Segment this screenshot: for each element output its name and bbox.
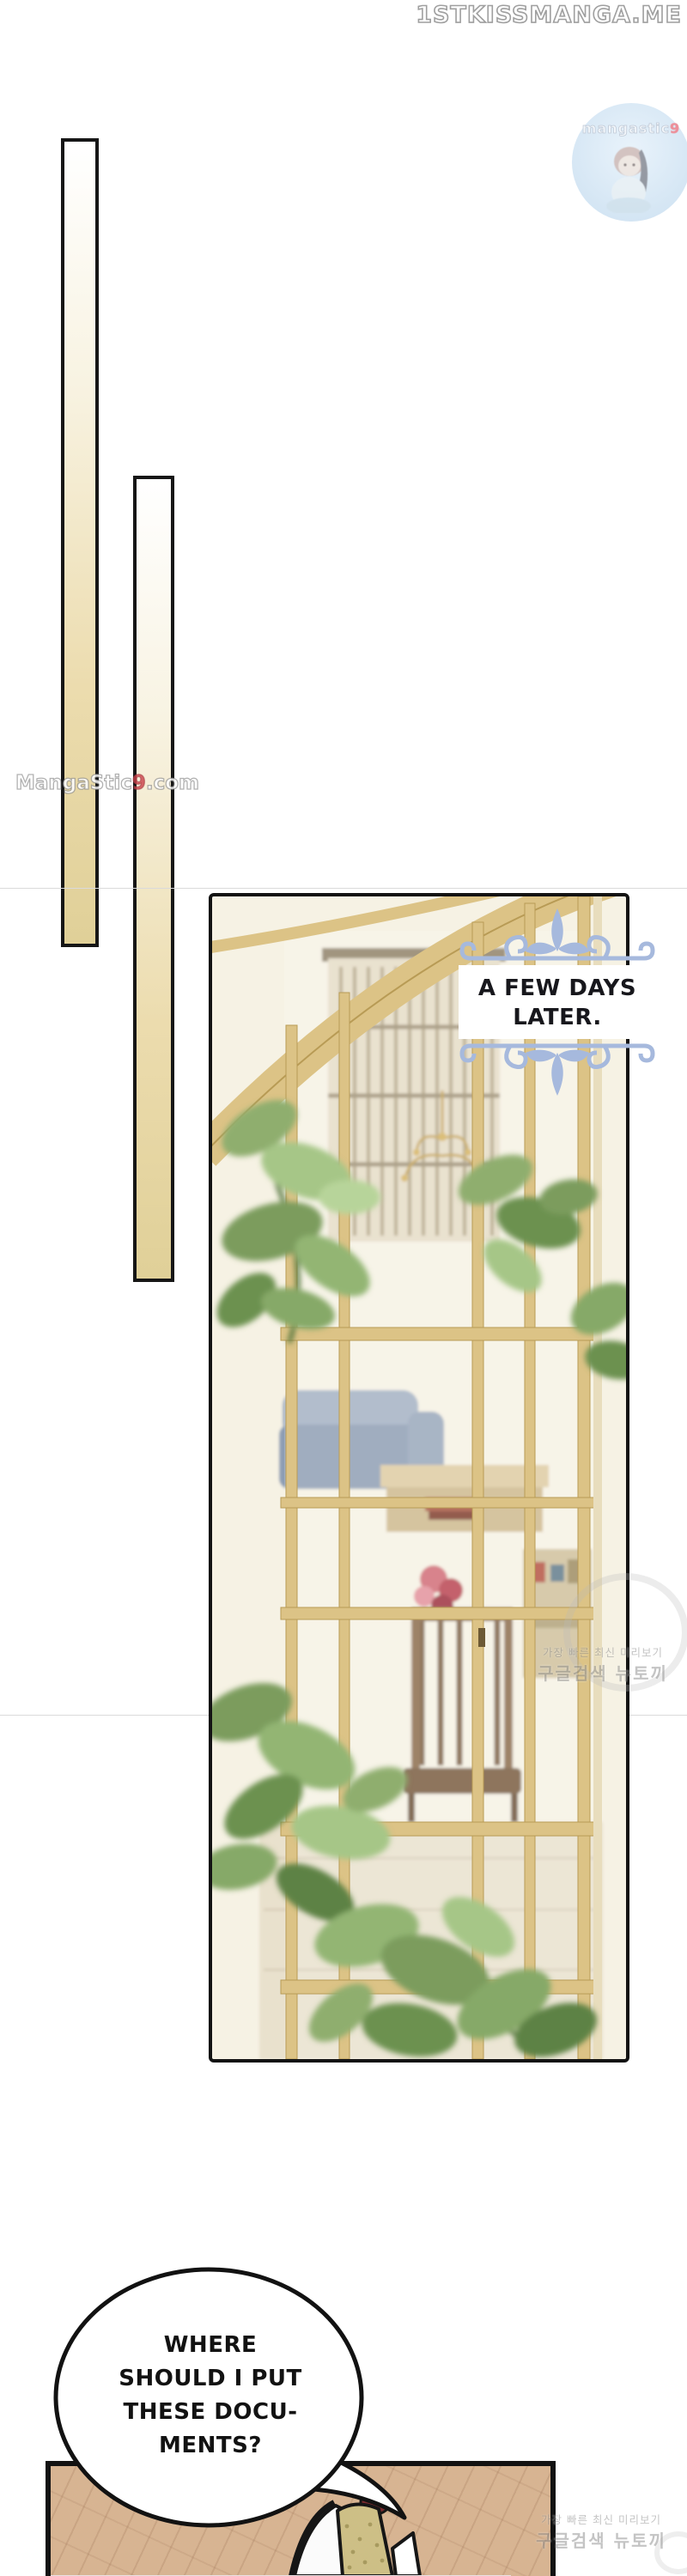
- newtoki-watermark-line-small: 가장 빠른 최신 미리보기: [517, 1643, 687, 1660]
- side-watermark: MangaStic9.com: [15, 772, 199, 794]
- newtoki-watermark-bottom: 가장 빠른 최신 미리보기 구글검색 뉴토끼: [515, 2511, 687, 2552]
- badge-label: mangastic9: [572, 120, 687, 137]
- newtoki-watermark-line-large: 구글검색 뉴토끼: [517, 1660, 687, 1685]
- badge-girl-illustration: [601, 139, 661, 213]
- speech-line-3: THESE DOCU-: [82, 2396, 339, 2429]
- caption-flourish-bottom: [459, 1039, 656, 1099]
- mangastic-badge: mangastic9: [572, 103, 687, 222]
- caption-line-1: A FEW DAYS: [459, 974, 656, 1003]
- caption-text-box: A FEW DAYS LATER.: [459, 965, 656, 1039]
- caption-line-2: LATER.: [459, 1003, 656, 1032]
- site-title: 1STKISSMANGA.ME: [416, 2, 682, 28]
- speech-line-4: MENTS?: [82, 2429, 339, 2463]
- newtoki-watermark-line-large: 구글검색 뉴토끼: [515, 2527, 687, 2552]
- comic-page[interactable]: 1STKISSMANGA.ME mangastic9 MangaStic9.co…: [0, 0, 687, 2576]
- caption-flourish-top: [459, 905, 656, 965]
- vertical-bar-2: [133, 476, 174, 1282]
- speech-line-1: WHERE: [82, 2329, 339, 2362]
- speech-bubble-text: WHERE SHOULD I PUT THESE DOCU- MENTS?: [82, 2329, 339, 2463]
- speech-line-2: SHOULD I PUT: [82, 2362, 339, 2396]
- caption-box: A FEW DAYS LATER.: [459, 905, 656, 1099]
- vertical-bar-1: [61, 138, 99, 947]
- panel-separator-line: [0, 888, 687, 889]
- newtoki-watermark-line-small: 가장 빠른 최신 미리보기: [515, 2511, 687, 2527]
- newtoki-watermark-mid: 가장 빠른 최신 미리보기 구글검색 뉴토끼: [517, 1643, 687, 1685]
